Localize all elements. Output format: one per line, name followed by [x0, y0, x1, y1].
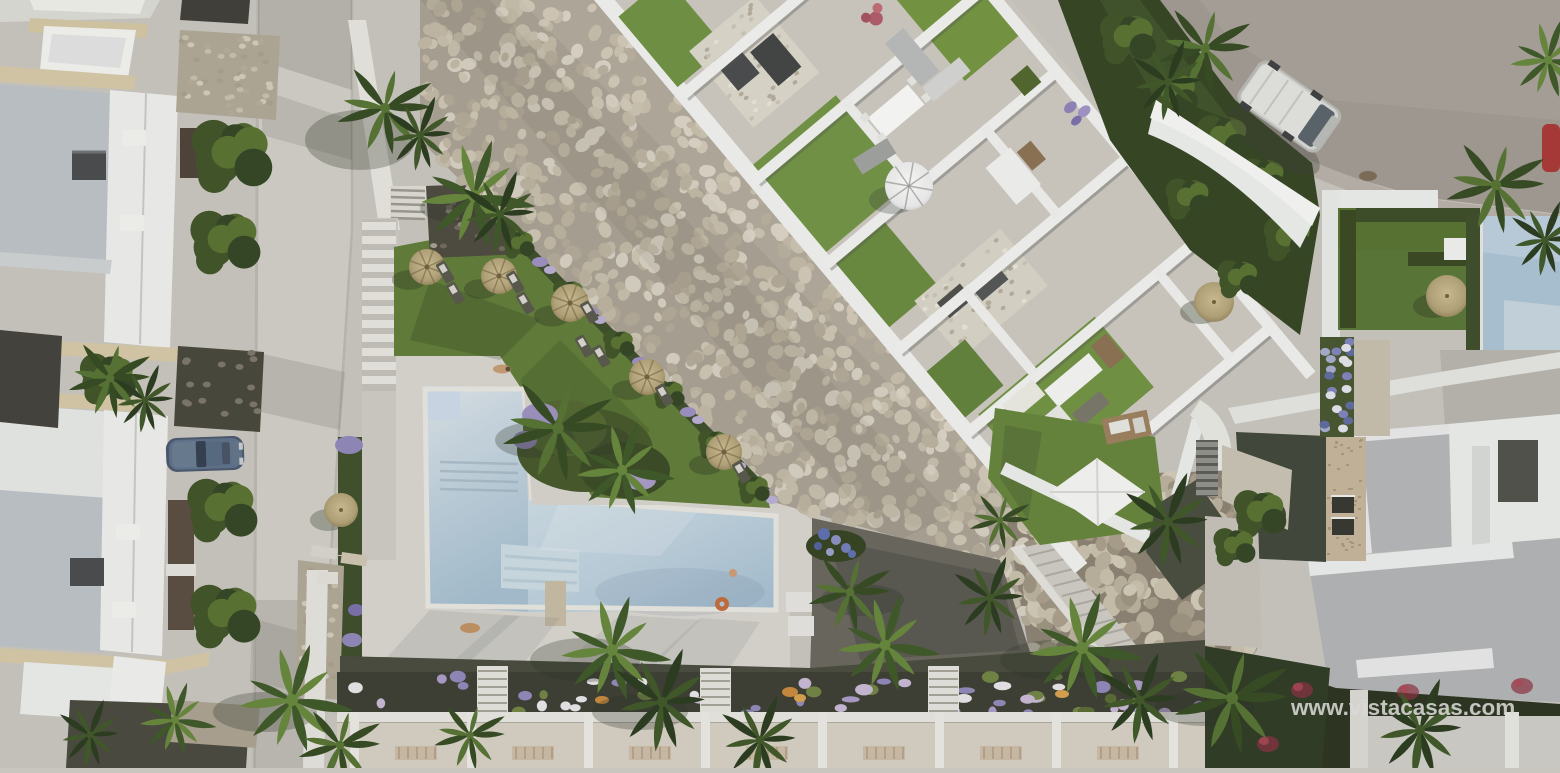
svg-text:www.vistacasas.com: www.vistacasas.com: [1290, 695, 1515, 720]
